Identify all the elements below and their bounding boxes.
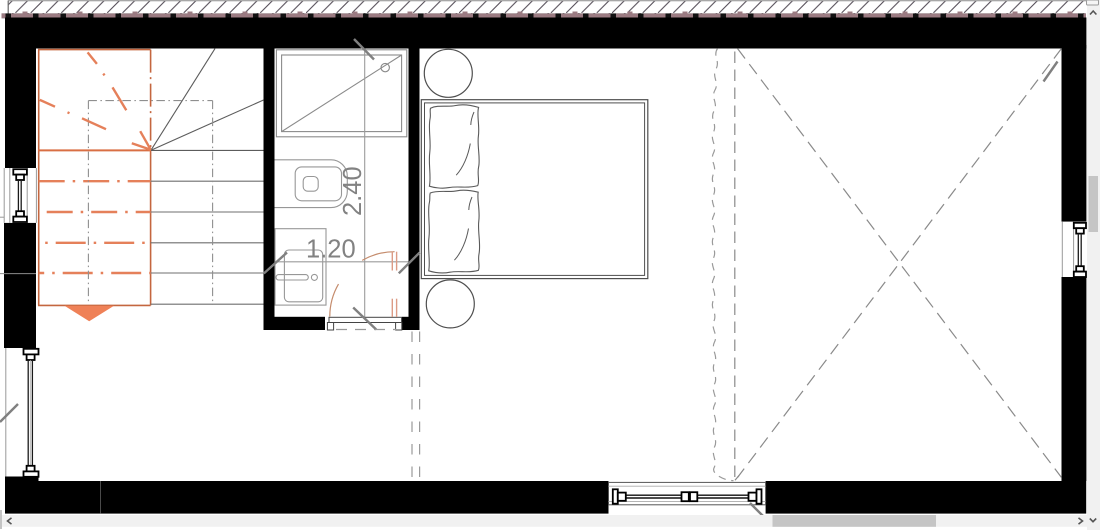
svg-text:2.40: 2.40 [339,166,367,216]
svg-text:1.20: 1.20 [306,236,356,264]
